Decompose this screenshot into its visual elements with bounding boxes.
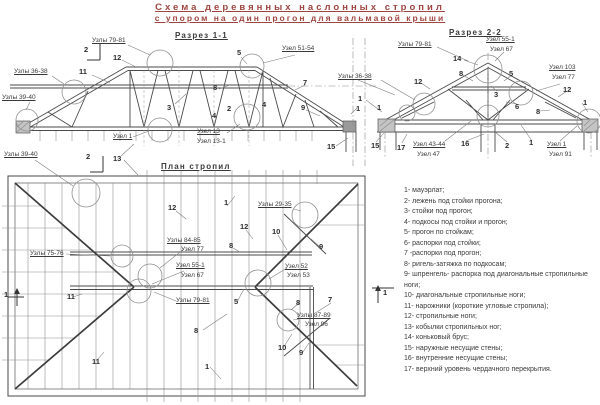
node-callout-sublabel: Узел 77 <box>552 74 575 81</box>
node-callout-label: Узлы 36-38 <box>338 73 372 80</box>
page-title: Схема деревянных наслонных стропил с упо… <box>0 2 600 23</box>
node-callout-sublabel: Узел 47 <box>417 151 440 158</box>
part-number-label: 8 <box>536 108 540 116</box>
node-callout-label: Узел 13 <box>197 128 220 135</box>
part-number-label: 1 <box>224 199 228 207</box>
part-number-label: 10 <box>278 344 286 352</box>
part-number-label: 2 <box>84 46 88 54</box>
node-callout-label: Узел 52 <box>285 263 308 270</box>
part-number-label: 5 <box>234 298 238 306</box>
node-callout-label: Узлы 79-81 <box>92 37 126 44</box>
legend-item: 8- ригель-затяжка по подкосам; <box>404 260 598 271</box>
node-callout-label: Узел 55-1 <box>176 262 205 269</box>
part-number-label: 1 <box>583 99 587 107</box>
part-number-label: 5 <box>237 49 241 57</box>
part-number-label: 8 <box>296 299 300 307</box>
part-number-label: 14 <box>453 55 461 63</box>
node-callout-label: Узлы 39-40 <box>4 151 38 158</box>
legend-item: 9- шпренгель- распорка под диагональные … <box>404 270 598 291</box>
part-number-label: 1 <box>383 289 387 297</box>
part-number-label: 9 <box>301 104 305 112</box>
part-number-label: 1 <box>205 363 209 371</box>
part-number-label: 12 <box>240 223 248 231</box>
part-number-label: 4 <box>212 112 216 120</box>
parts-legend: 1- мауэрлат;2- лежень под стойки прогона… <box>404 186 598 375</box>
part-number-label: 6 <box>515 103 519 111</box>
part-number-label: 12 <box>113 54 121 62</box>
legend-item: 4- подкосы под стойки и прогон; <box>404 218 598 229</box>
node-callout-label: Узлы 29-35 <box>258 201 292 208</box>
legend-item: 5- прогон по стойкам; <box>404 228 598 239</box>
legend-item: 16- внутренние несущие стены; <box>404 354 598 365</box>
part-number-label: 7 <box>303 79 307 87</box>
part-number-label: 9 <box>319 243 323 251</box>
part-number-label: 12 <box>563 86 571 94</box>
node-callout-sublabel: Узел 13-1 <box>197 138 226 145</box>
node-callout-label: Узлы 75-76 <box>30 250 64 257</box>
node-callout-sublabel: Узел 67 <box>181 272 204 279</box>
node-callout-sublabel: Узел 77 <box>181 246 204 253</box>
title-line-1: Схема деревянных наслонных стропил <box>0 2 600 13</box>
node-callout-label: Узлы 79-81 <box>398 41 432 48</box>
part-number-label: 3 <box>494 91 498 99</box>
part-number-label: 1 <box>358 95 362 103</box>
part-number-label: 1 <box>356 105 360 113</box>
part-number-label: 7 <box>328 296 332 304</box>
plan-drawing <box>2 170 365 402</box>
node-callout-sublabel: Узел 91 <box>549 151 572 158</box>
part-number-label: 5 <box>509 70 513 78</box>
node-callout-sublabel: Узел 53 <box>287 272 310 279</box>
legend-item: 7 -распорки под прогон; <box>404 249 598 260</box>
part-number-label: 15 <box>327 143 335 151</box>
part-number-label: 2 <box>227 105 231 113</box>
part-number-label: 11 <box>79 68 87 76</box>
legend-item: 12- стропильные ноги; <box>404 312 598 323</box>
node-callout-label: Узлы 79-81 <box>176 297 210 304</box>
node-callout-label: Узлы 39-40 <box>2 94 36 101</box>
part-number-label: 11 <box>67 293 75 301</box>
legend-item: 11- нарожники (короткие угловые стропила… <box>404 302 598 313</box>
plan-title: План стропил <box>161 162 231 171</box>
legend-item: 13- кобылки стропильных ног; <box>404 323 598 334</box>
part-number-label: 12 <box>168 204 176 212</box>
part-number-label: 3 <box>167 104 171 112</box>
node-callout-label: Узел 43-44 <box>413 141 445 148</box>
part-number-label: 1 <box>4 291 8 299</box>
node-callout-label: Узел 1 <box>113 133 132 140</box>
roof-scheme-canvas: Схема деревянных наслонных стропил с упо… <box>0 0 600 405</box>
node-callout-sublabel: Узел 67 <box>490 46 513 53</box>
node-callout-label: Узлы 36-38 <box>14 68 48 75</box>
part-number-label: 1 <box>529 139 533 147</box>
section-1-title: Разрез 1-1 <box>175 31 228 40</box>
node-callout-label: Узел 103 <box>549 64 576 71</box>
part-number-label: 8 <box>213 84 217 92</box>
part-number-label: 8 <box>194 327 198 335</box>
part-number-label: 11 <box>92 358 100 366</box>
node-callout-label: Узел 55-1 <box>486 36 515 43</box>
node-callout-label: Узел 51-54 <box>282 45 314 52</box>
legend-item: 14- коньковый брус; <box>404 333 598 344</box>
legend-item: 2- лежень под стойки прогона; <box>404 197 598 208</box>
part-number-label: 8 <box>229 242 233 250</box>
legend-item: 10- диагональные стропильные ноги; <box>404 291 598 302</box>
title-line-2: с упором на один прогон для вальмавой кр… <box>0 13 600 23</box>
part-number-label: 1 <box>377 104 381 112</box>
part-number-label: 2 <box>505 142 509 150</box>
part-number-label: 17 <box>397 144 405 152</box>
part-number-label: 12 <box>414 78 422 86</box>
node-callout-label: Узлы 87-89 <box>297 312 331 319</box>
legend-item: 17- верхний уровень чердачного перекрыти… <box>404 365 598 376</box>
node-callout-label: Узел 1 <box>547 141 566 148</box>
part-number-label: 2 <box>86 153 90 161</box>
part-number-label: 4 <box>262 101 266 109</box>
part-number-label: 15 <box>371 142 379 150</box>
part-number-label: 16 <box>461 140 469 148</box>
truss-1-drawing <box>10 38 378 166</box>
legend-item: 15- наружные несущие стены; <box>404 344 598 355</box>
legend-item: 1- мауэрлат; <box>404 186 598 197</box>
part-number-label: 10 <box>272 228 280 236</box>
legend-item: 6- распорки под стойки; <box>404 239 598 250</box>
node-callout-sublabel: Узел 96 <box>305 321 328 328</box>
node-callout-label: Узлы 84-85 <box>167 237 201 244</box>
legend-item: 3- стойки под прогон; <box>404 207 598 218</box>
part-number-label: 9 <box>299 349 303 357</box>
part-number-label: 13 <box>113 155 121 163</box>
part-number-label: 8 <box>459 70 463 78</box>
